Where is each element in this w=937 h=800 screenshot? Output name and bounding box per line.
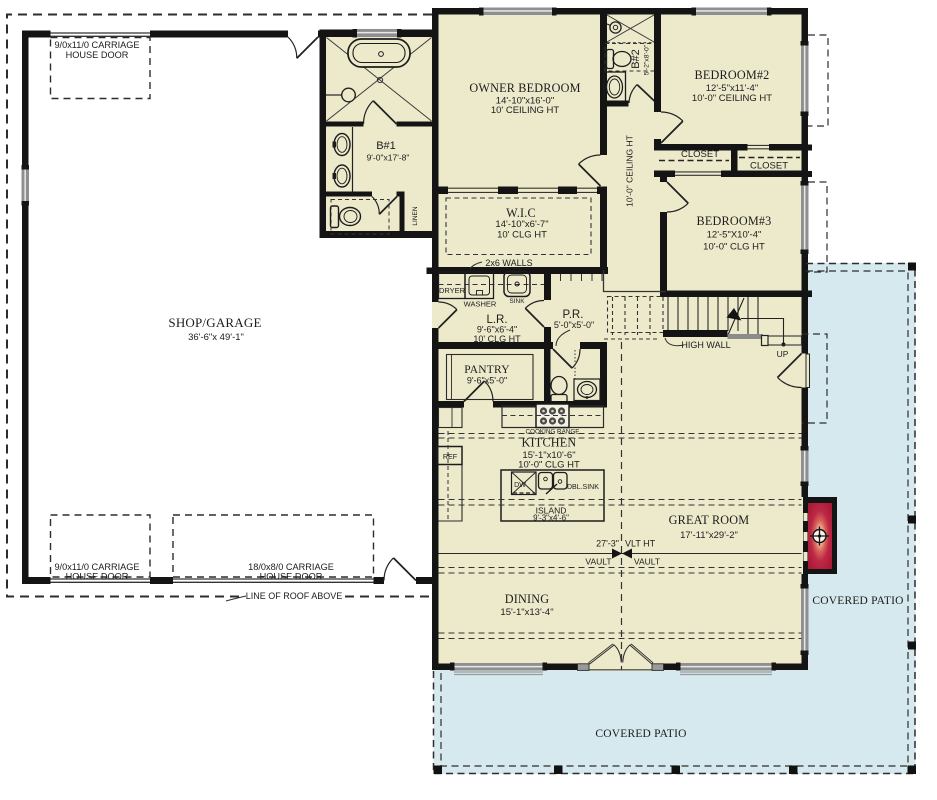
svg-text:W.I.C: W.I.C [506,206,536,220]
svg-text:HOUSE DOOR: HOUSE DOOR [66,572,129,582]
svg-text:PANTRY: PANTRY [464,364,510,376]
svg-text:LINEN: LINEN [412,206,419,225]
svg-text:B#1: B#1 [376,140,396,152]
svg-text:HIGH WALL: HIGH WALL [681,340,730,350]
svg-text:CLOSET: CLOSET [681,149,719,160]
svg-text:9'-3"x4'-6": 9'-3"x4'-6" [533,514,569,523]
svg-text:B#2: B#2 [630,49,642,69]
svg-text:COVERED PATIO: COVERED PATIO [595,728,686,740]
svg-text:SHOP/GARAGE: SHOP/GARAGE [168,315,261,330]
svg-text:10'-0" CLG HT: 10'-0" CLG HT [518,460,580,471]
svg-text:SINK: SINK [509,298,525,305]
svg-text:COVERED PATIO: COVERED PATIO [812,595,903,607]
svg-text:10'-0" CEILING HT: 10'-0" CEILING HT [692,93,772,104]
svg-text:27'-3": 27'-3" [596,539,619,549]
svg-text:36'-6"x 49'-1": 36'-6"x 49'-1" [188,332,244,343]
svg-text:GREAT ROOM: GREAT ROOM [669,513,750,527]
svg-text:UP: UP [777,349,789,359]
svg-text:10'-0" CEILING HT: 10'-0" CEILING HT [625,135,635,207]
svg-text:DINING: DINING [505,592,550,606]
svg-text:18/0x8/0 CARRIAGE: 18/0x8/0 CARRIAGE [248,562,334,572]
svg-text:WASHER: WASHER [464,300,497,309]
svg-text:9/0x11/0 CARRIAGE: 9/0x11/0 CARRIAGE [54,562,139,572]
svg-text:REF: REF [443,452,458,461]
svg-text:5'-0"x5'-0": 5'-0"x5'-0" [554,320,594,330]
svg-text:10' CEILING HT: 10' CEILING HT [491,105,560,116]
svg-text:LINE OF ROOF ABOVE: LINE OF ROOF ABOVE [246,591,343,601]
svg-text:5'-2"x8'-0": 5'-2"x8'-0" [644,44,651,75]
svg-text:VAULT: VAULT [634,557,660,567]
svg-text:CLOSET: CLOSET [750,161,788,172]
svg-text:2x6 WALLS: 2x6 WALLS [485,258,532,268]
svg-text:BEDROOM#2: BEDROOM#2 [695,68,770,82]
svg-text:DBL.SINK: DBL.SINK [567,484,599,491]
svg-text:9'-6"x6'-4": 9'-6"x6'-4" [477,325,517,335]
svg-text:12'-5"X10'-4": 12'-5"X10'-4" [707,230,762,241]
svg-text:9'-0"x17'-8": 9'-0"x17'-8" [367,153,410,163]
svg-text:BEDROOM#3: BEDROOM#3 [697,214,772,228]
svg-text:14'-10"x6'-7": 14'-10"x6'-7" [495,219,548,230]
svg-text:DW: DW [514,482,526,489]
svg-text:HOUSE DOOR: HOUSE DOOR [260,572,323,582]
svg-text:9/0x11/0 CARRIAGE: 9/0x11/0 CARRIAGE [54,40,139,50]
svg-text:VAULT: VAULT [585,557,611,567]
svg-text:10' CLG HT: 10' CLG HT [497,230,547,241]
svg-text:HOUSE DOOR: HOUSE DOOR [66,50,129,60]
svg-text:DRYER: DRYER [439,286,466,295]
svg-text:VLT HT: VLT HT [625,539,656,549]
svg-text:15'-1"x13'-4": 15'-1"x13'-4" [500,607,553,618]
svg-text:10'-0" CLG HT: 10'-0" CLG HT [703,242,765,253]
svg-text:17'-11"x29'-2": 17'-11"x29'-2" [680,530,738,541]
svg-text:COOKING RANGE: COOKING RANGE [526,429,580,436]
svg-text:OWNER BEDROOM: OWNER BEDROOM [469,81,580,95]
